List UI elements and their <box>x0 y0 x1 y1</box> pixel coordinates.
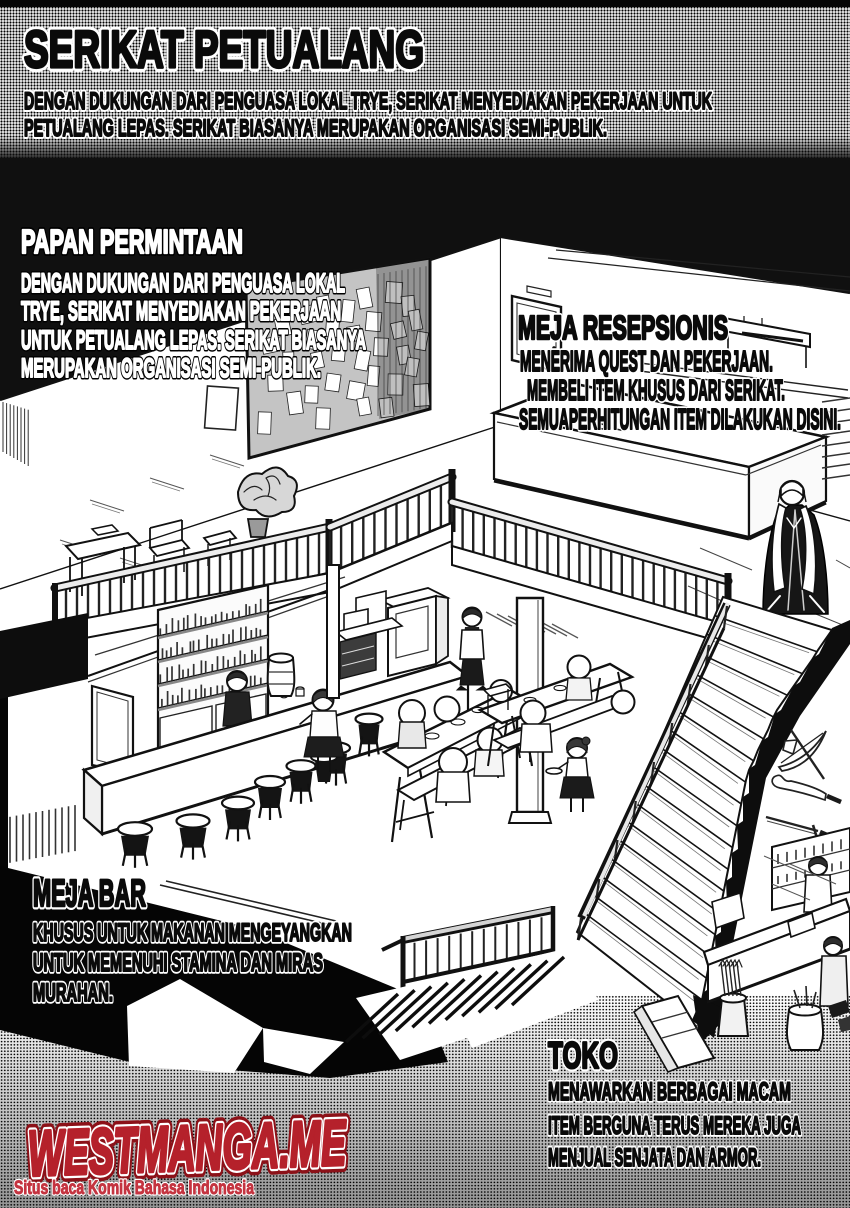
svg-text:DENGAN DUKUNGAN DARI PENGUASA: DENGAN DUKUNGAN DARI PENGUASA LOKAL TRYE… <box>24 88 712 115</box>
svg-text:ITEM BERGUNA TERUS MEREKA JUGA: ITEM BERGUNA TERUS MEREKA JUGA <box>548 1112 801 1140</box>
svg-text:UNTUK MEMENUHI STAMINA DAN MIR: UNTUK MEMENUHI STAMINA DAN MIRAS <box>33 949 323 977</box>
svg-text:MEJA BAR: MEJA BAR <box>33 873 146 915</box>
svg-text:MENAWARKAN BERBAGAI MACAM: MENAWARKAN BERBAGAI MACAM <box>548 1078 791 1106</box>
svg-text:MEMBELI ITEM KHUSUS DARI SERIK: MEMBELI ITEM KHUSUS DARI SERIKAT. <box>527 375 785 407</box>
svg-text:SEMUAPERHITUNGAN ITEM DILAKUKA: SEMUAPERHITUNGAN ITEM DILAKUKAN DISINI. <box>519 404 841 436</box>
svg-text:TOKO: TOKO <box>548 1035 618 1076</box>
svg-text:MENJUAL SENJATA DAN ARMOR.: MENJUAL SENJATA DAN ARMOR. <box>548 1144 761 1172</box>
svg-text:PAPAN PERMINTAAN: PAPAN PERMINTAAN <box>21 223 243 260</box>
svg-text:PETUALANG LEPAS. SERIKAT BIASA: PETUALANG LEPAS. SERIKAT BIASANYA MERUPA… <box>24 115 607 142</box>
svg-text:MENERIMA QUEST DAN PEKERJAAN.: MENERIMA QUEST DAN PEKERJAAN. <box>520 346 773 378</box>
svg-text:SERIKAT PETUALANG: SERIKAT PETUALANG <box>24 21 424 79</box>
svg-text:Situs baca Komik Bahasa Indone: Situs baca Komik Bahasa Indonesia <box>14 1177 254 1199</box>
svg-text:UNTUK PETUALANG LEPAS. SERIKAT: UNTUK PETUALANG LEPAS. SERIKAT BIASANYA <box>21 325 366 355</box>
svg-text:KHUSUS UNTUK MAKANAN MENGEYANG: KHUSUS UNTUK MAKANAN MENGEYANGKAN <box>33 919 352 947</box>
svg-text:MEJA RESEPSIONIS: MEJA RESEPSIONIS <box>518 309 728 346</box>
svg-text:MERUPAKAN ORGANISASI SEMI-PUBL: MERUPAKAN ORGANISASI SEMI-PUBLIK. <box>21 353 321 383</box>
svg-text:DENGAN DUKUNGAN DARI PENGUASA: DENGAN DUKUNGAN DARI PENGUASA LOKAL <box>21 268 345 298</box>
svg-text:MURAHAN.: MURAHAN. <box>33 979 113 1007</box>
svg-text:TRYE, SERIKAT MENYEDIAKAN PEKE: TRYE, SERIKAT MENYEDIAKAN PEKERJAAN <box>21 296 341 326</box>
